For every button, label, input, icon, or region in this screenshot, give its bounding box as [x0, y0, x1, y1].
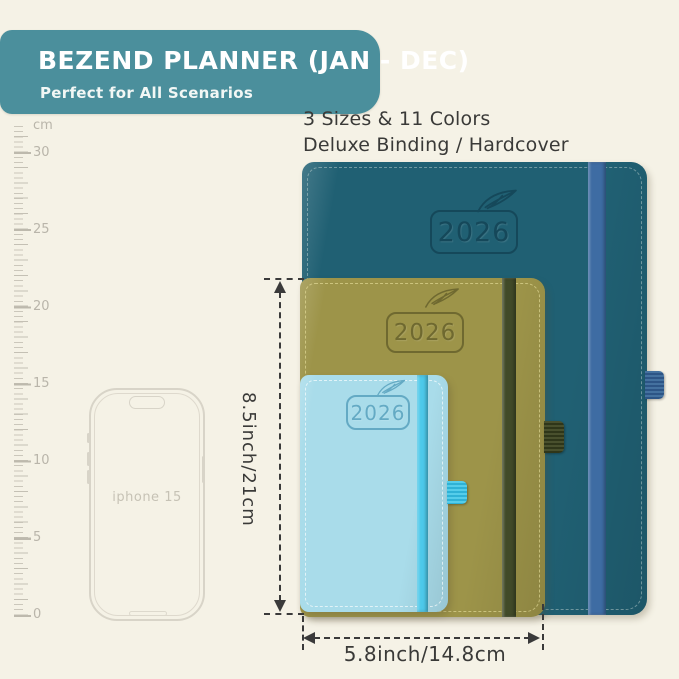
ruler-ticks-small — [14, 126, 23, 618]
pen-loop-medium — [544, 421, 564, 453]
iphone-power-button — [202, 456, 205, 483]
width-extension-line-right — [542, 604, 544, 650]
elastic-band-medium — [502, 278, 516, 617]
height-extension-line-bottom — [264, 613, 304, 615]
iphone-action-button — [87, 433, 90, 443]
iphone-label: iphone 15 — [91, 490, 203, 505]
pen-loop-small — [447, 481, 467, 504]
height-arrow-down — [274, 600, 286, 612]
year-emboss-medium: 2026 — [386, 312, 464, 353]
feather-icon — [376, 379, 406, 397]
elastic-band-small — [417, 375, 428, 612]
height-extension-line-top — [264, 278, 304, 280]
height-dimension-label: 8.5inch/21cm — [238, 392, 259, 527]
ruler-label-25: 25 — [33, 222, 50, 237]
ruler-label-10: 10 — [33, 453, 50, 468]
product-image: BEZEND PLANNER (JAN - DEC) Perfect for A… — [0, 0, 679, 679]
feather-icon — [476, 188, 518, 214]
elastic-band-large — [588, 162, 606, 615]
ruler-label-0: 0 — [33, 607, 41, 622]
iphone-volume-down-button — [87, 470, 90, 484]
ruler: cm 30 25 20 15 10 5 0 — [0, 0, 60, 679]
ruler-label-15: 15 — [33, 376, 50, 391]
year-emboss-large: 2026 — [430, 210, 518, 254]
iphone-outline: iphone 15 — [89, 388, 205, 621]
ruler-unit-label: cm — [33, 118, 53, 133]
year-emboss-small: 2026 — [346, 395, 410, 430]
planner-small: 2026 — [300, 375, 448, 612]
feature-sizes-colors: 3 Sizes & 11 Colors — [303, 108, 490, 130]
ruler-ticks-5cm — [14, 152, 31, 617]
iphone-dynamic-island — [129, 396, 165, 409]
feature-binding: Deluxe Binding / Hardcover — [303, 134, 569, 156]
feather-icon — [424, 286, 460, 310]
height-dimension-line — [279, 292, 281, 601]
ruler-label-20: 20 — [33, 299, 50, 314]
ruler-label-30: 30 — [33, 145, 50, 160]
pen-loop-large — [645, 371, 664, 399]
banner-title: BEZEND PLANNER (JAN - DEC) — [38, 46, 368, 75]
banner-subtitle: Perfect for All Scenarios — [40, 84, 253, 102]
width-dimension-label: 5.8inch/14.8cm — [320, 642, 530, 666]
width-dimension-line — [314, 637, 530, 639]
iphone-port — [129, 611, 167, 616]
iphone-volume-up-button — [87, 452, 90, 466]
ruler-label-5: 5 — [33, 530, 41, 545]
ruler-ticks-cm — [14, 136, 28, 618]
